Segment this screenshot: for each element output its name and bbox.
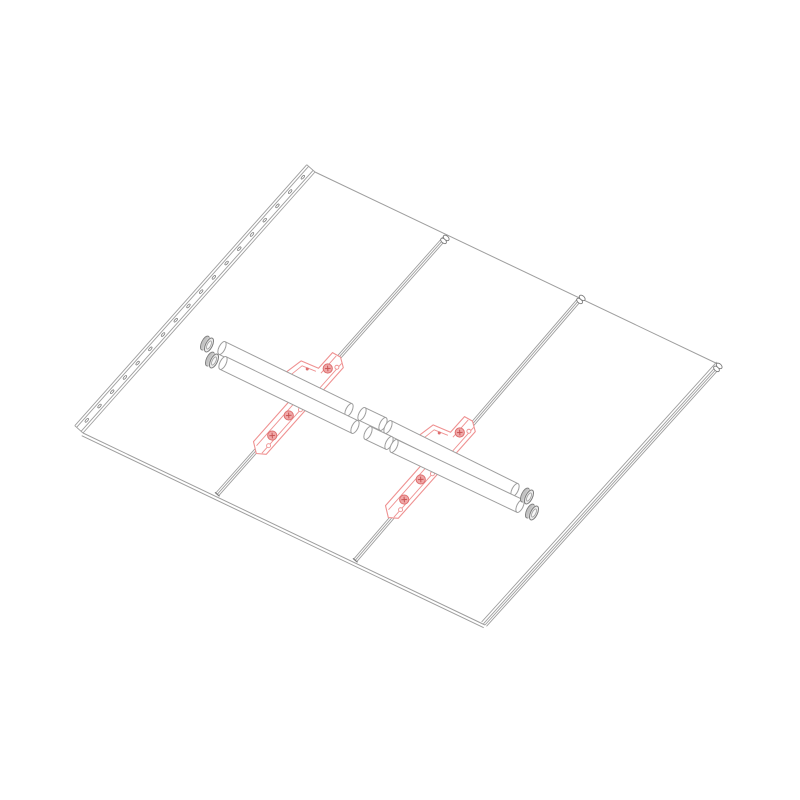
bracket-hole [467,429,471,433]
bracket-bolt [416,475,425,484]
bracket-bolt [268,431,277,440]
technical-drawing-canvas [0,0,800,800]
bracket-rivet [306,368,309,371]
bracket-rivet [438,432,441,435]
assembly-drawing-svg [0,0,800,800]
bracket-hole [399,508,403,512]
bracket-bolt [323,364,332,373]
bracket-hole [267,444,271,448]
bracket-bolt [400,495,409,504]
bracket-hole [335,365,339,369]
bracket-bolt [284,411,293,420]
bracket-bolt [455,428,464,437]
